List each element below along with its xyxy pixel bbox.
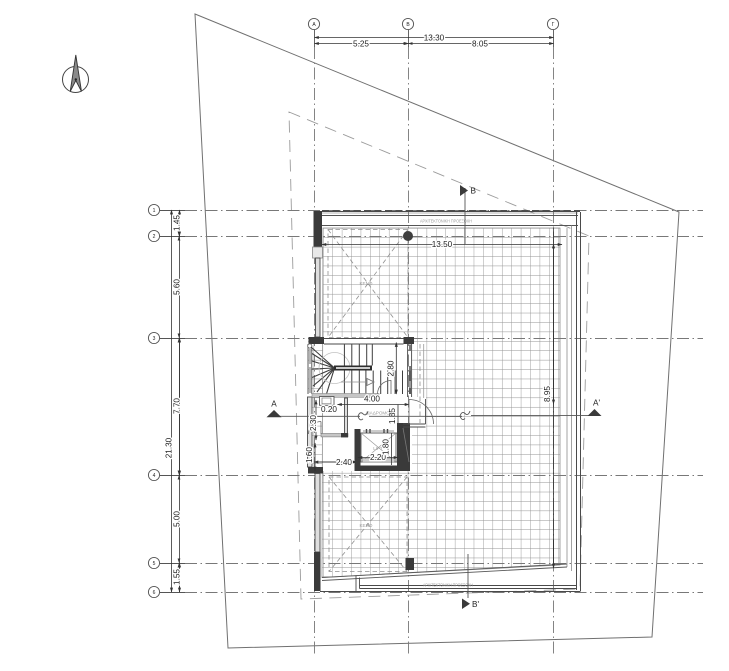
- svg-text:2.30: 2.30: [309, 415, 318, 431]
- svg-text:13.30: 13.30: [424, 34, 445, 43]
- svg-text:2: 2: [153, 234, 156, 240]
- svg-text:5.60: 5.60: [172, 279, 181, 295]
- svg-text:6: 6: [153, 590, 156, 596]
- svg-text:5.00: 5.00: [172, 511, 181, 527]
- svg-text:Γ: Γ: [552, 22, 555, 28]
- svg-text:2.80: 2.80: [386, 360, 395, 376]
- svg-text:8.95: 8.95: [543, 386, 552, 402]
- svg-text:4: 4: [153, 473, 156, 479]
- svg-text:8.05: 8.05: [472, 40, 488, 49]
- svg-text:B': B': [472, 600, 479, 609]
- svg-text:0.20: 0.20: [321, 405, 337, 414]
- svg-text:A: A: [271, 400, 277, 409]
- svg-text:7.70: 7.70: [172, 398, 181, 414]
- svg-text:1: 1: [153, 208, 156, 214]
- svg-text:KENO: KENO: [359, 523, 372, 528]
- svg-text:5.25: 5.25: [353, 40, 369, 49]
- svg-text:KENO: KENO: [359, 281, 372, 286]
- svg-text:ΑΡΧΙΤΕΚΤΟΝΙΚΗ ΠΡΟΕΞΟΧΗ: ΑΡΧΙΤΕΚΤΟΝΙΚΗ ΠΡΟΕΞΟΧΗ: [420, 219, 472, 224]
- svg-text:ΑΡΧΙΤΕΚΤΟΝΙΚΗ ΠΡΟΕΞΟΧΗ: ΑΡΧΙΤΕΚΤΟΝΙΚΗ ΠΡΟΕΞΟΧΗ: [423, 583, 473, 588]
- svg-text:13.50: 13.50: [432, 240, 453, 249]
- svg-text:A': A': [593, 399, 600, 408]
- svg-text:3: 3: [153, 336, 156, 342]
- svg-text:1.80: 1.80: [382, 439, 391, 455]
- svg-text:ΔΙΑΔΡΟΜΟΣ: ΔΙΑΔΡΟΜΟΣ: [365, 411, 393, 416]
- svg-text:4.00: 4.00: [364, 395, 380, 404]
- svg-text:1.55: 1.55: [172, 569, 181, 585]
- svg-text:2.40: 2.40: [336, 458, 352, 467]
- svg-text:B: B: [471, 187, 477, 196]
- svg-text:21.30: 21.30: [164, 437, 173, 458]
- svg-text:5: 5: [153, 561, 156, 567]
- svg-text:1.60: 1.60: [305, 447, 314, 463]
- svg-text:1.45: 1.45: [172, 215, 181, 231]
